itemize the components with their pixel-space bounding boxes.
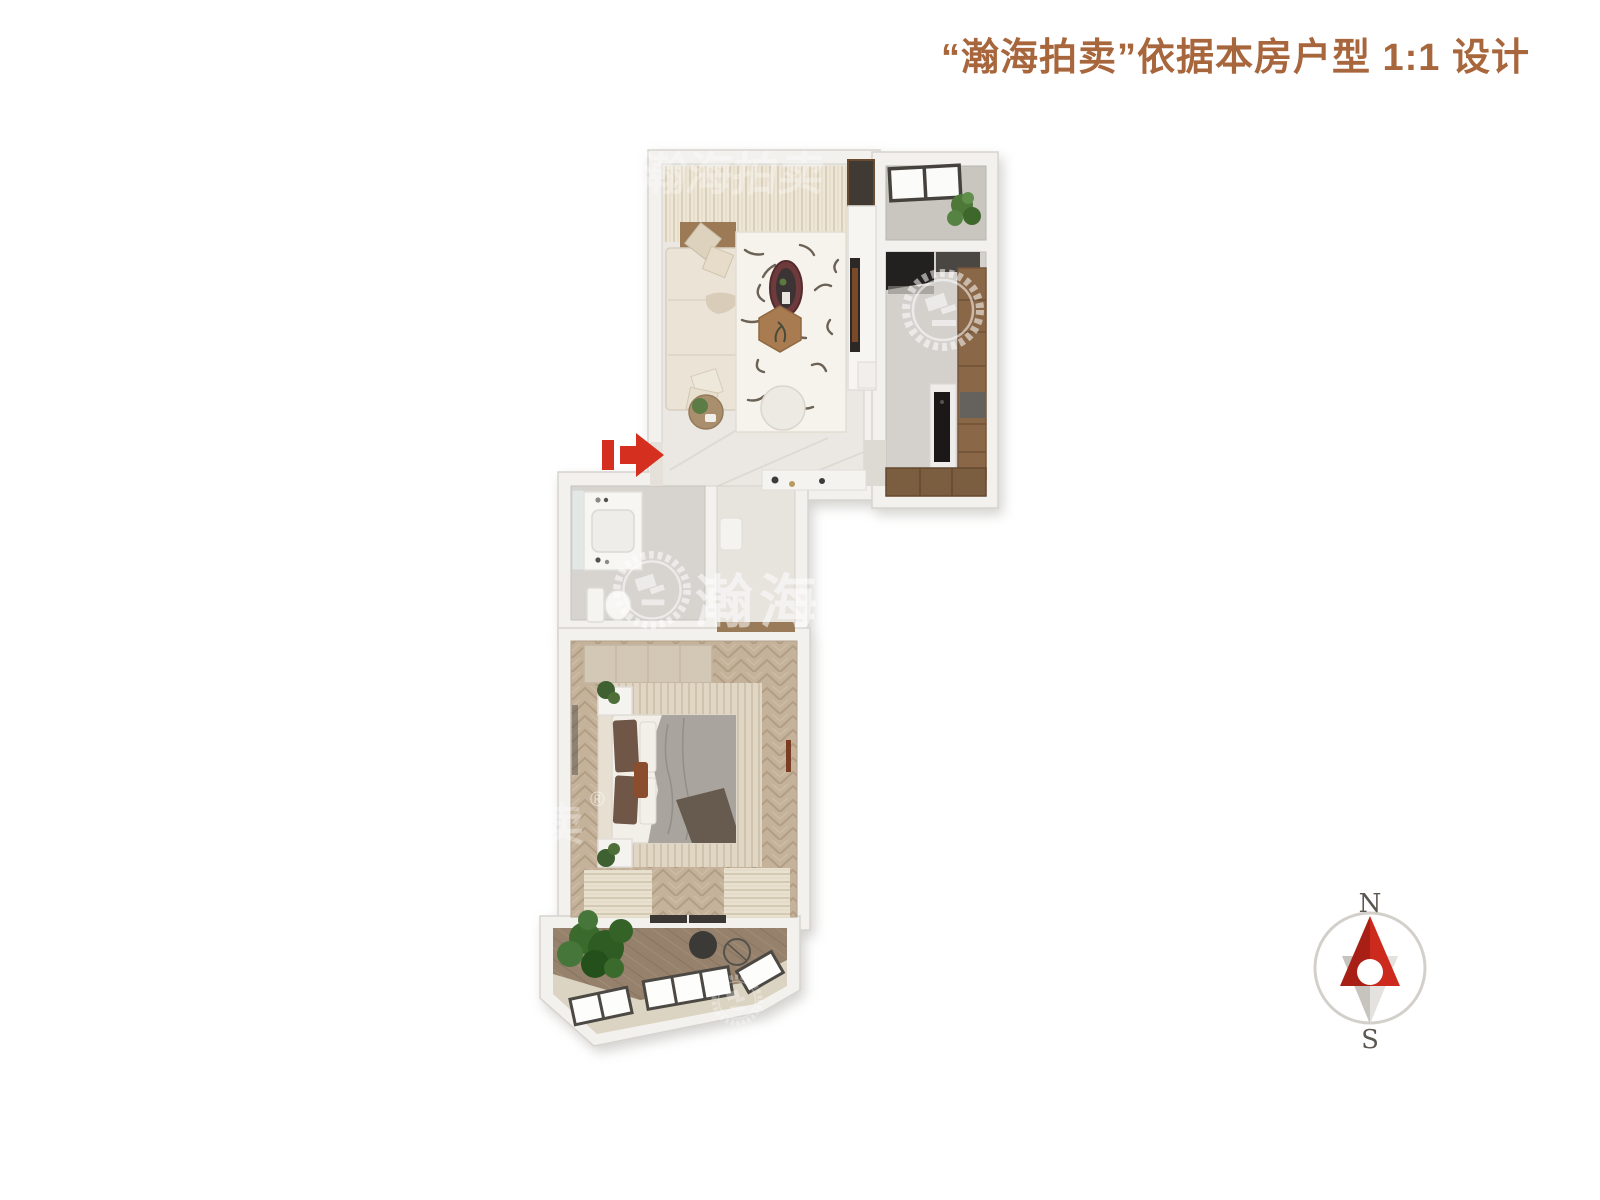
compass-center-hole: [1357, 959, 1383, 985]
faucet: [595, 497, 600, 502]
soap-dispenser: [604, 498, 608, 502]
kitchen-cabinets-bottom: [886, 468, 986, 496]
north-label: N: [1359, 889, 1382, 919]
wall-art: [848, 160, 874, 206]
watermark-partial-side-text: 卖: [540, 801, 584, 850]
vanity-accessory: [595, 557, 600, 562]
vanity-sink: [592, 510, 634, 552]
cabinet-appliance-inset: [960, 392, 986, 418]
floor-plan-canvas: 瀚海 瀚海拍卖 卖 ® N S: [0, 0, 1600, 1200]
lumbar-pillow: [634, 762, 648, 798]
headboard: [598, 713, 612, 845]
floor-plan-page: “瀚海拍卖”依据本房户型 1:1 设计: [0, 0, 1600, 1200]
toilet-tank: [587, 588, 604, 622]
side-table-plant: [692, 398, 708, 414]
pouf: [761, 386, 805, 430]
bench-knob: [772, 477, 779, 484]
bedroom-curtain-left: [584, 870, 652, 918]
bench-knob: [819, 478, 825, 484]
mirror: [572, 490, 584, 570]
side-table-tray: [705, 414, 716, 422]
table-book: [782, 292, 790, 304]
tv-screen-glow: [852, 268, 858, 342]
watermark-partial-top-text: 瀚海拍卖: [637, 148, 828, 200]
round-chair: [689, 931, 717, 959]
radiator: [720, 518, 742, 550]
south-label: S: [1361, 1025, 1379, 1055]
kitchen-doorway: [864, 440, 886, 486]
bench-knob: [789, 481, 795, 487]
nightstand-plant: [608, 692, 620, 704]
tv-side-shelf: [858, 362, 876, 388]
table-plant: [780, 279, 787, 286]
watermark-registered-mark: ®: [590, 789, 605, 811]
bedroom-window-frame: [572, 705, 578, 775]
round-side-table: [689, 395, 723, 429]
compass-icon: N S: [1315, 889, 1425, 1055]
wall-accent: [786, 740, 791, 772]
nightstand-plant: [608, 843, 620, 855]
entrance-arrow-bar: [602, 440, 614, 470]
watermark-brand-text: 瀚海: [695, 570, 823, 635]
vanity-accessory: [605, 560, 609, 564]
bedroom-curtain-right: [724, 868, 790, 918]
skylight-window: [889, 165, 961, 201]
cooktop-knob: [940, 400, 944, 404]
